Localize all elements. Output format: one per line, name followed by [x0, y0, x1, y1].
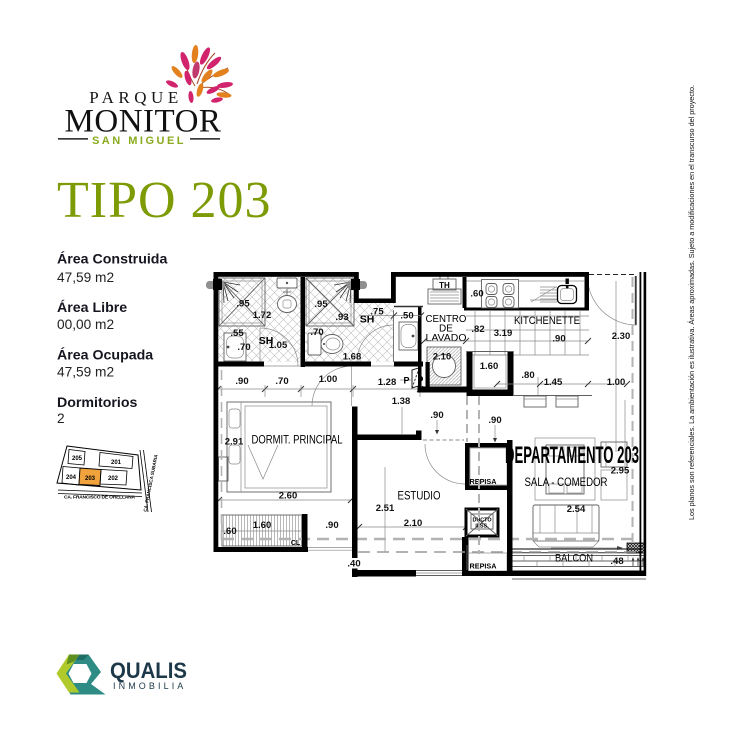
svg-text:1.72: 1.72 — [253, 310, 272, 321]
svg-text:.90: .90 — [488, 415, 501, 426]
svg-text:Área Ocupada: Área Ocupada — [57, 347, 153, 364]
svg-text:.95: .95 — [236, 299, 250, 310]
svg-text:.90: .90 — [430, 410, 443, 421]
svg-text:.70: .70 — [275, 376, 288, 387]
svg-text:203: 203 — [85, 476, 96, 482]
svg-text:1.00: 1.00 — [607, 377, 626, 388]
svg-text:2.60: 2.60 — [279, 491, 298, 502]
svg-text:QUALIS: QUALIS — [110, 658, 187, 683]
svg-text:1.60: 1.60 — [480, 361, 499, 372]
svg-text:201: 201 — [111, 460, 122, 466]
svg-text:.50: .50 — [400, 311, 413, 322]
svg-text:REPISA: REPISA — [470, 564, 497, 571]
svg-text:47,59 m2: 47,59 m2 — [57, 365, 114, 380]
svg-text:KITCHENETTE: KITCHENETTE — [514, 315, 580, 327]
svg-text:.90: .90 — [235, 376, 248, 387]
svg-text:CA. FRANCISCO DE ORELLANA: CA. FRANCISCO DE ORELLANA — [64, 495, 135, 501]
svg-text:.48: .48 — [610, 556, 623, 567]
svg-text:1.05: 1.05 — [269, 340, 288, 351]
svg-text:1.68: 1.68 — [343, 352, 362, 363]
svg-text:.90: .90 — [552, 334, 565, 345]
svg-text:CL: CL — [291, 540, 301, 547]
svg-text:202: 202 — [108, 476, 119, 482]
svg-text:Los planos son referenciales.: Los planos son referenciales. La ambient… — [687, 85, 696, 520]
svg-text:3.19: 3.19 — [494, 328, 513, 339]
svg-text:Área Construida: Área Construida — [57, 251, 167, 268]
svg-text:2: 2 — [57, 411, 65, 426]
svg-text:TIPO 203: TIPO 203 — [57, 172, 272, 229]
svg-text:.93: .93 — [335, 312, 348, 323]
svg-text:SAN MIGUEL: SAN MIGUEL — [92, 135, 186, 147]
svg-text:2.51: 2.51 — [376, 503, 395, 514]
svg-text:P: P — [403, 376, 409, 386]
svg-text:SALA - COMEDOR: SALA - COMEDOR — [525, 475, 608, 489]
svg-text:2.10: 2.10 — [433, 352, 452, 363]
svg-text:2.10: 2.10 — [404, 518, 423, 529]
svg-text:00,00 m2: 00,00 m2 — [57, 317, 114, 332]
svg-text:.80: .80 — [521, 370, 534, 381]
svg-text:LAVADO: LAVADO — [426, 333, 467, 344]
svg-text:1.28: 1.28 — [378, 377, 397, 388]
svg-text:Área Libre: Área Libre — [57, 299, 127, 316]
svg-text:1.45: 1.45 — [544, 377, 563, 388]
svg-text:.60: .60 — [470, 289, 483, 300]
svg-text:Dormitorios: Dormitorios — [57, 395, 138, 411]
svg-text:204: 204 — [66, 475, 77, 481]
svg-text:.70: .70 — [310, 327, 323, 338]
svg-text:.75: .75 — [370, 307, 384, 318]
svg-text:REPISA: REPISA — [470, 479, 497, 486]
svg-text:2.30: 2.30 — [612, 331, 631, 342]
svg-text:BALCON: BALCON — [555, 553, 593, 565]
svg-text:II.SS.: II.SS. — [475, 524, 489, 530]
svg-text:.55: .55 — [230, 328, 244, 339]
svg-text:1.38: 1.38 — [392, 396, 411, 407]
svg-text:.40: .40 — [347, 559, 360, 570]
svg-text:47,59 m2: 47,59 m2 — [57, 270, 114, 285]
svg-text:.95: .95 — [314, 299, 328, 310]
svg-text:1.60: 1.60 — [253, 520, 272, 531]
svg-text:INMOBILIA: INMOBILIA — [113, 681, 186, 691]
svg-text:ESTUDIO: ESTUDIO — [398, 489, 441, 503]
svg-text:2.95: 2.95 — [611, 466, 630, 477]
svg-text:2.91: 2.91 — [225, 437, 244, 448]
svg-text:1.00: 1.00 — [319, 374, 338, 385]
svg-text:2.54: 2.54 — [567, 504, 586, 515]
svg-text:DORMIT. PRINCIPAL: DORMIT. PRINCIPAL — [252, 433, 343, 447]
svg-text:205: 205 — [72, 456, 83, 462]
svg-text:.90: .90 — [325, 520, 338, 531]
svg-text:.70: .70 — [237, 342, 250, 353]
svg-text:.82: .82 — [471, 324, 484, 335]
svg-text:.60: .60 — [223, 526, 236, 537]
